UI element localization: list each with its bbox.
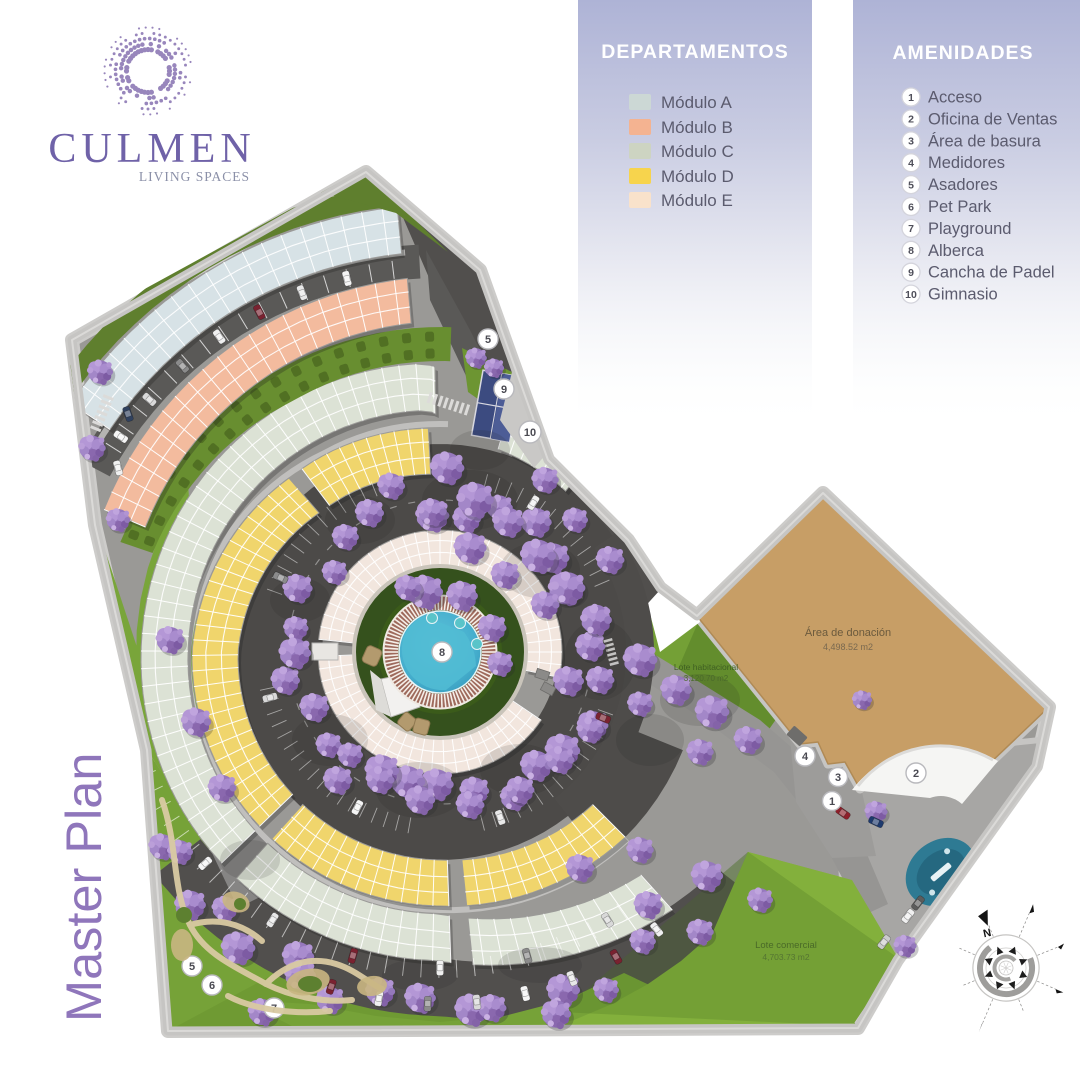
svg-text:Módulo A: Módulo A bbox=[661, 93, 733, 112]
svg-text:4,498.52 m2: 4,498.52 m2 bbox=[823, 642, 873, 652]
svg-text:3,120.70 m2: 3,120.70 m2 bbox=[684, 674, 729, 683]
svg-text:Módulo B: Módulo B bbox=[661, 118, 733, 137]
svg-text:Área de donación: Área de donación bbox=[805, 626, 891, 639]
svg-text:1: 1 bbox=[908, 92, 914, 104]
svg-text:CULMEN: CULMEN bbox=[48, 126, 255, 172]
svg-text:3: 3 bbox=[908, 136, 914, 148]
svg-text:9: 9 bbox=[501, 384, 507, 396]
svg-text:Módulo E: Módulo E bbox=[661, 191, 733, 210]
svg-text:6: 6 bbox=[908, 201, 914, 213]
svg-text:Playground: Playground bbox=[928, 220, 1011, 238]
svg-text:Oficina de Ventas: Oficina de Ventas bbox=[928, 110, 1057, 128]
svg-text:Acceso: Acceso bbox=[928, 89, 982, 107]
svg-text:10: 10 bbox=[524, 427, 536, 439]
svg-text:Pet Park: Pet Park bbox=[928, 198, 992, 216]
svg-text:Master Plan: Master Plan bbox=[55, 753, 112, 1022]
svg-text:5: 5 bbox=[908, 179, 914, 191]
svg-text:5: 5 bbox=[485, 334, 491, 346]
svg-text:Asadores: Asadores bbox=[928, 176, 998, 194]
svg-text:Alberca: Alberca bbox=[928, 242, 985, 260]
svg-text:Módulo C: Módulo C bbox=[661, 142, 734, 161]
svg-text:2: 2 bbox=[913, 768, 919, 780]
svg-text:Lote comercial: Lote comercial bbox=[755, 940, 817, 951]
svg-text:6: 6 bbox=[209, 980, 215, 992]
svg-text:Gimnasio: Gimnasio bbox=[928, 286, 998, 304]
svg-text:8: 8 bbox=[908, 245, 914, 257]
svg-text:Cancha de Padel: Cancha de Padel bbox=[928, 264, 1055, 282]
svg-text:8: 8 bbox=[439, 647, 445, 659]
svg-text:7: 7 bbox=[908, 223, 914, 235]
svg-text:9: 9 bbox=[908, 267, 914, 279]
svg-text:4,703.73 m2: 4,703.73 m2 bbox=[762, 952, 810, 962]
svg-text:3: 3 bbox=[835, 772, 841, 784]
svg-text:Medidores: Medidores bbox=[928, 154, 1005, 172]
svg-text:1: 1 bbox=[829, 796, 835, 808]
svg-text:DEPARTAMENTOS: DEPARTAMENTOS bbox=[601, 41, 788, 63]
svg-text:Módulo D: Módulo D bbox=[661, 167, 734, 186]
svg-text:Lote habitacional: Lote habitacional bbox=[674, 662, 738, 672]
svg-text:5: 5 bbox=[189, 961, 195, 973]
svg-text:4: 4 bbox=[908, 158, 914, 170]
svg-text:4: 4 bbox=[802, 751, 809, 763]
svg-text:LIVING SPACES: LIVING SPACES bbox=[139, 169, 250, 184]
svg-text:AMENIDADES: AMENIDADES bbox=[892, 42, 1033, 64]
svg-text:Área de basura: Área de basura bbox=[928, 131, 1042, 150]
svg-text:10: 10 bbox=[905, 289, 917, 301]
svg-text:2: 2 bbox=[908, 114, 914, 126]
